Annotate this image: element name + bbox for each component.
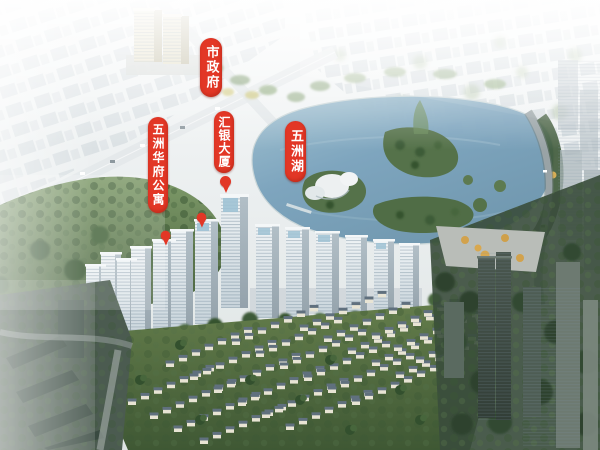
label-wuzhou-lake: 五洲湖 [285,121,306,182]
location-pin-icon-huiyin-tower [220,176,231,187]
label-city-government: 市政府 [200,38,222,97]
location-pin-icon-apartment-2 [197,213,207,223]
huiyin-tower-building [220,194,249,308]
label-wuzhou-huafu-apartments: 五洲华府公寓 [148,117,168,213]
rendering-artwork [0,0,600,450]
aerial-rendering: 市政府 汇银大厦 五洲华府公寓 五洲湖 [0,0,600,450]
location-pin-icon-apartment-1 [161,231,171,241]
label-huiyin-tower: 汇银大厦 [214,111,234,173]
